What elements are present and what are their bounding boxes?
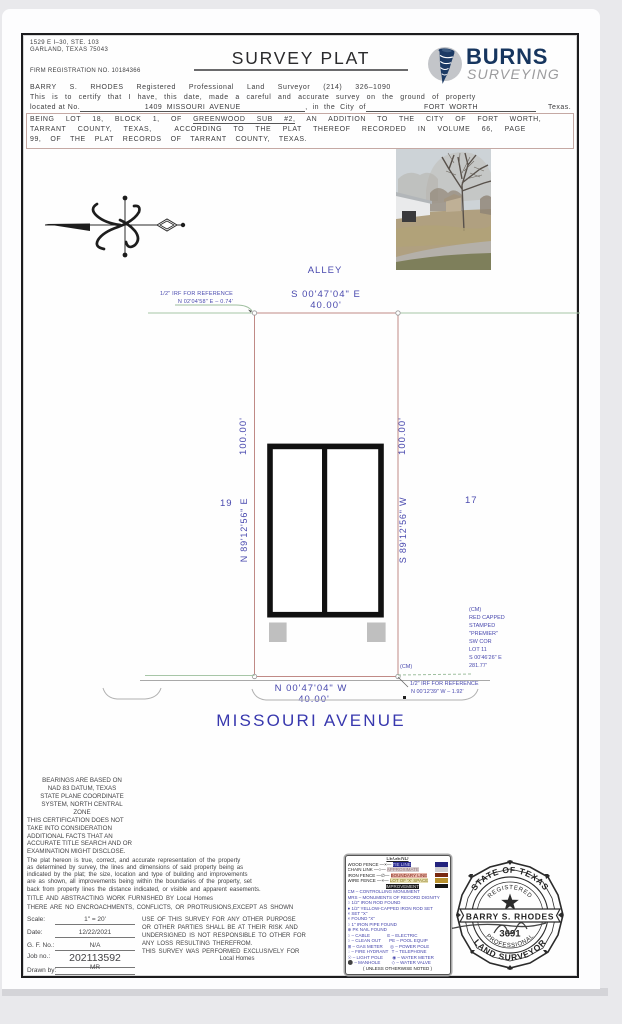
svg-text:S 00'47'04" E: S 00'47'04" E [291, 289, 361, 300]
svg-text:1/2" IRF FOR REFERENCE: 1/2" IRF FOR REFERENCE [160, 291, 233, 297]
svg-text:ALLEY: ALLEY [308, 265, 343, 276]
svg-text:STAMPED: STAMPED [469, 623, 495, 629]
svg-text:100.00': 100.00' [397, 417, 408, 455]
svg-text:SW COR: SW COR [469, 639, 492, 645]
svg-text:"PREMIER": "PREMIER" [469, 631, 498, 637]
svg-text:19: 19 [220, 498, 233, 509]
svg-text:N 89'12'56" E: N 89'12'56" E [239, 498, 249, 563]
svg-text:40.00': 40.00' [310, 300, 342, 311]
svg-text:BARRY S. RHODES: BARRY S. RHODES [466, 911, 554, 921]
svg-text:S 00'46'26" E: S 00'46'26" E [469, 655, 502, 661]
svg-text:N 00'47'04" W: N 00'47'04" W [275, 683, 348, 694]
svg-text:S 89'12'56" W: S 89'12'56" W [398, 497, 408, 564]
svg-text:MISSOURI AVENUE: MISSOURI AVENUE [216, 711, 406, 730]
svg-text:17: 17 [465, 495, 478, 506]
svg-text:(CM): (CM) [469, 607, 481, 613]
svg-text:LOT 11: LOT 11 [469, 647, 487, 653]
svg-text:RED CAPPED: RED CAPPED [469, 615, 505, 621]
svg-text:1/2" IRF FOR REFERENCE: 1/2" IRF FOR REFERENCE [410, 681, 479, 687]
svg-text:281.77': 281.77' [469, 663, 487, 669]
svg-text:100.00': 100.00' [238, 417, 249, 455]
svg-text:N 02'04'58" E – 0.74': N 02'04'58" E – 0.74' [178, 299, 233, 305]
svg-text:N 00'12'39" W – 1.92': N 00'12'39" W – 1.92' [411, 689, 464, 695]
svg-text:(CM): (CM) [400, 664, 412, 670]
